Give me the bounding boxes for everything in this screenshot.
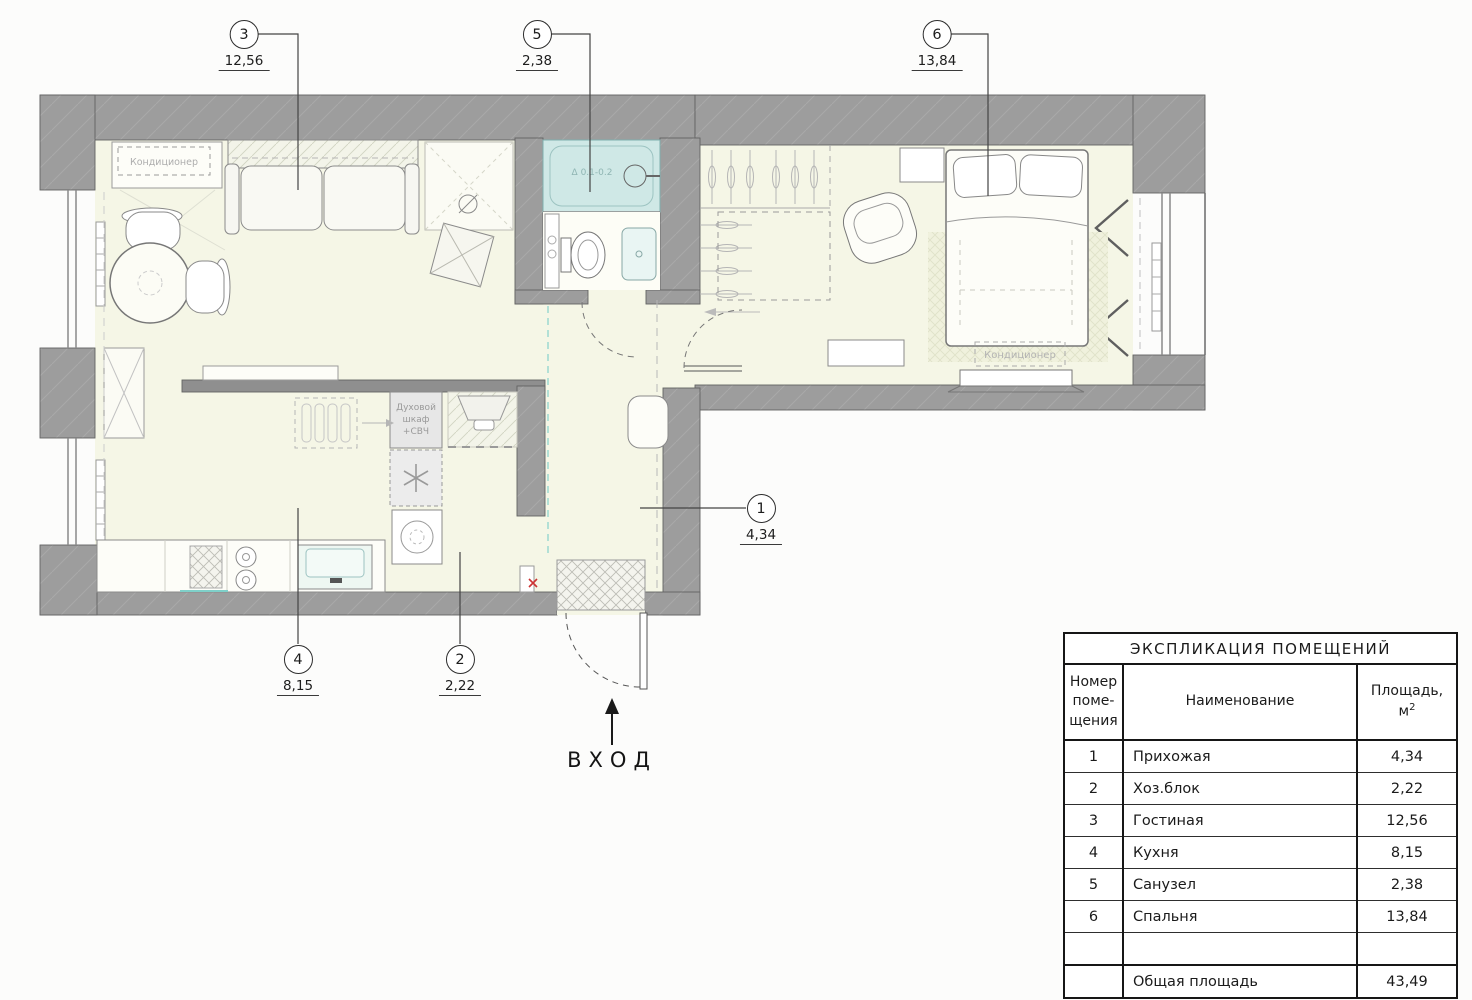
wall-hall-right <box>663 388 700 615</box>
entrance-door-swing <box>566 613 640 687</box>
faucet <box>330 578 342 583</box>
room-callout-4: 4 8,15 <box>277 645 319 696</box>
room-callout-3: 3 12,56 <box>219 20 270 71</box>
callout-number: 3 <box>230 20 259 49</box>
callout-area: 8,15 <box>277 678 319 696</box>
legend-row-3: 3 Гостиная 12,56 <box>1064 805 1457 837</box>
entrance-arrow <box>605 698 619 745</box>
wall-left-mid-pier <box>40 348 95 438</box>
legend-row-2: 2 Хоз.блок 2,22 <box>1064 773 1457 805</box>
room-callout-1: 1 4,34 <box>740 494 782 545</box>
sofa-armrest <box>405 164 419 234</box>
legend-cell-area: 4,34 <box>1357 740 1457 773</box>
legend-cell-num: 2 <box>1064 773 1123 805</box>
wall-right-top-corner <box>1133 95 1205 193</box>
dishwasher <box>190 546 222 588</box>
callout-number: 4 <box>284 645 313 674</box>
legend-cell-name: Санузел <box>1123 869 1357 901</box>
wall-bath-right <box>660 138 700 304</box>
radiator <box>1152 243 1161 331</box>
bath-vanity <box>545 214 559 288</box>
sofa-cushion <box>324 166 405 230</box>
legend-cell-area: 13,84 <box>1357 901 1457 933</box>
legend-cell-name: Кухня <box>1123 837 1357 869</box>
bedroom-bench <box>828 340 904 366</box>
oven-label-line3: +СВЧ <box>403 427 429 437</box>
stove-burner <box>236 570 256 590</box>
legend-cell-num: 3 <box>1064 805 1123 837</box>
legend-cell-num: 1 <box>1064 740 1123 773</box>
wall-bottom-entry <box>645 592 700 615</box>
legend-cell-num: 6 <box>1064 901 1123 933</box>
ac-living-label: Кондиционер <box>130 157 198 168</box>
room-callout-6: 6 13,84 <box>912 20 963 71</box>
legend-row-6: 6 Спальня 13,84 <box>1064 901 1457 933</box>
chair <box>186 261 224 313</box>
legend-cell-name: Прихожая <box>1123 740 1357 773</box>
legend-title: ЭКСПЛИКАЦИЯ ПОМЕЩЕНИЙ <box>1064 633 1457 664</box>
callout-area: 13,84 <box>912 53 963 71</box>
floor-plan-page: Кондиционер <box>0 0 1472 1000</box>
callout-area: 2,22 <box>439 678 481 696</box>
legend-total-value: 43,49 <box>1357 965 1457 998</box>
wall-bath-bottom-left <box>515 290 588 304</box>
entrance-label: ВХОД <box>567 748 657 772</box>
bathroom: Δ 0.1-0.2 <box>543 140 660 290</box>
wall-left-bottom-pier <box>40 545 97 615</box>
dresser <box>960 370 1072 386</box>
callout-number: 6 <box>923 20 952 49</box>
callout-area: 2,38 <box>516 53 558 71</box>
legend-cell-name: Хоз.блок <box>1123 773 1357 805</box>
legend-header-name: Наименование <box>1123 664 1357 740</box>
legend-cell-area: 2,38 <box>1357 869 1457 901</box>
wall-utility-right <box>517 386 545 516</box>
toilet <box>571 232 605 278</box>
legend-header-number: Номер поме- щения <box>1064 664 1123 740</box>
legend-cell-area: 8,15 <box>1357 837 1457 869</box>
legend-row-1: 1 Прихожая 4,34 <box>1064 740 1457 773</box>
callout-area: 4,34 <box>740 527 782 545</box>
pouf-bench <box>628 396 668 448</box>
legend-cell-area: 12,56 <box>1357 805 1457 837</box>
room-callout-2: 2 2,22 <box>439 645 481 696</box>
wall-top-bedroom <box>695 95 1135 145</box>
pillow <box>953 154 1018 198</box>
room-callout-5: 5 2,38 <box>516 20 558 71</box>
wall-bedroom-bottom <box>695 385 1205 410</box>
callout-number: 1 <box>747 494 776 523</box>
callout-area: 12,56 <box>219 53 270 71</box>
sofa-armrest <box>225 164 239 234</box>
legend-row-4: 4 Кухня 8,15 <box>1064 837 1457 869</box>
entry-cabinet <box>520 566 534 592</box>
legend-cell-name: Гостиная <box>1123 805 1357 837</box>
wall-left-top-pier <box>40 95 95 190</box>
washing-machine <box>392 510 442 564</box>
callout-number: 5 <box>523 20 552 49</box>
legend-total-row: Общая площадь 43,49 <box>1064 965 1457 998</box>
entrance-door-leaf <box>640 613 647 689</box>
legend-cell-num: 5 <box>1064 869 1123 901</box>
legend-cell-area: 2,22 <box>1357 773 1457 805</box>
legend-empty-row <box>1064 933 1457 966</box>
arrow-up-icon <box>605 698 619 714</box>
shower-tray <box>622 228 656 280</box>
level-mark-label: Δ 0.1-0.2 <box>572 168 613 178</box>
entry-mat <box>557 560 645 610</box>
legend-cell-name: Спальня <box>1123 901 1357 933</box>
sofa-cushion <box>241 166 322 230</box>
legend-row-5: 5 Санузел 2,38 <box>1064 869 1457 901</box>
oven-label-line1: Духовой <box>396 403 436 413</box>
legend-header-area: Площадь, м2 <box>1357 664 1457 740</box>
stove-burner <box>236 547 256 567</box>
room-legend-table: ЭКСПЛИКАЦИЯ ПОМЕЩЕНИЙ Номер поме- щения … <box>1063 632 1458 999</box>
wall-bath-bottom-right <box>646 290 700 304</box>
nightstand <box>900 148 944 182</box>
shower-head <box>624 165 646 187</box>
legend-cell-num: 4 <box>1064 837 1123 869</box>
bed <box>946 150 1088 346</box>
kitchen-bar-wall <box>182 380 545 392</box>
legend-total-label: Общая площадь <box>1123 965 1357 998</box>
pillow <box>1019 154 1083 197</box>
wall-bath-left <box>515 138 543 304</box>
ac-bedroom-label: Кондиционер <box>984 350 1056 361</box>
oven-label-line2: шкаф <box>403 415 430 425</box>
callout-number: 2 <box>446 645 475 674</box>
bar-shelf <box>203 366 338 380</box>
wall-top-left <box>40 95 695 140</box>
sofa <box>225 140 419 234</box>
toilet-tank <box>561 238 571 272</box>
